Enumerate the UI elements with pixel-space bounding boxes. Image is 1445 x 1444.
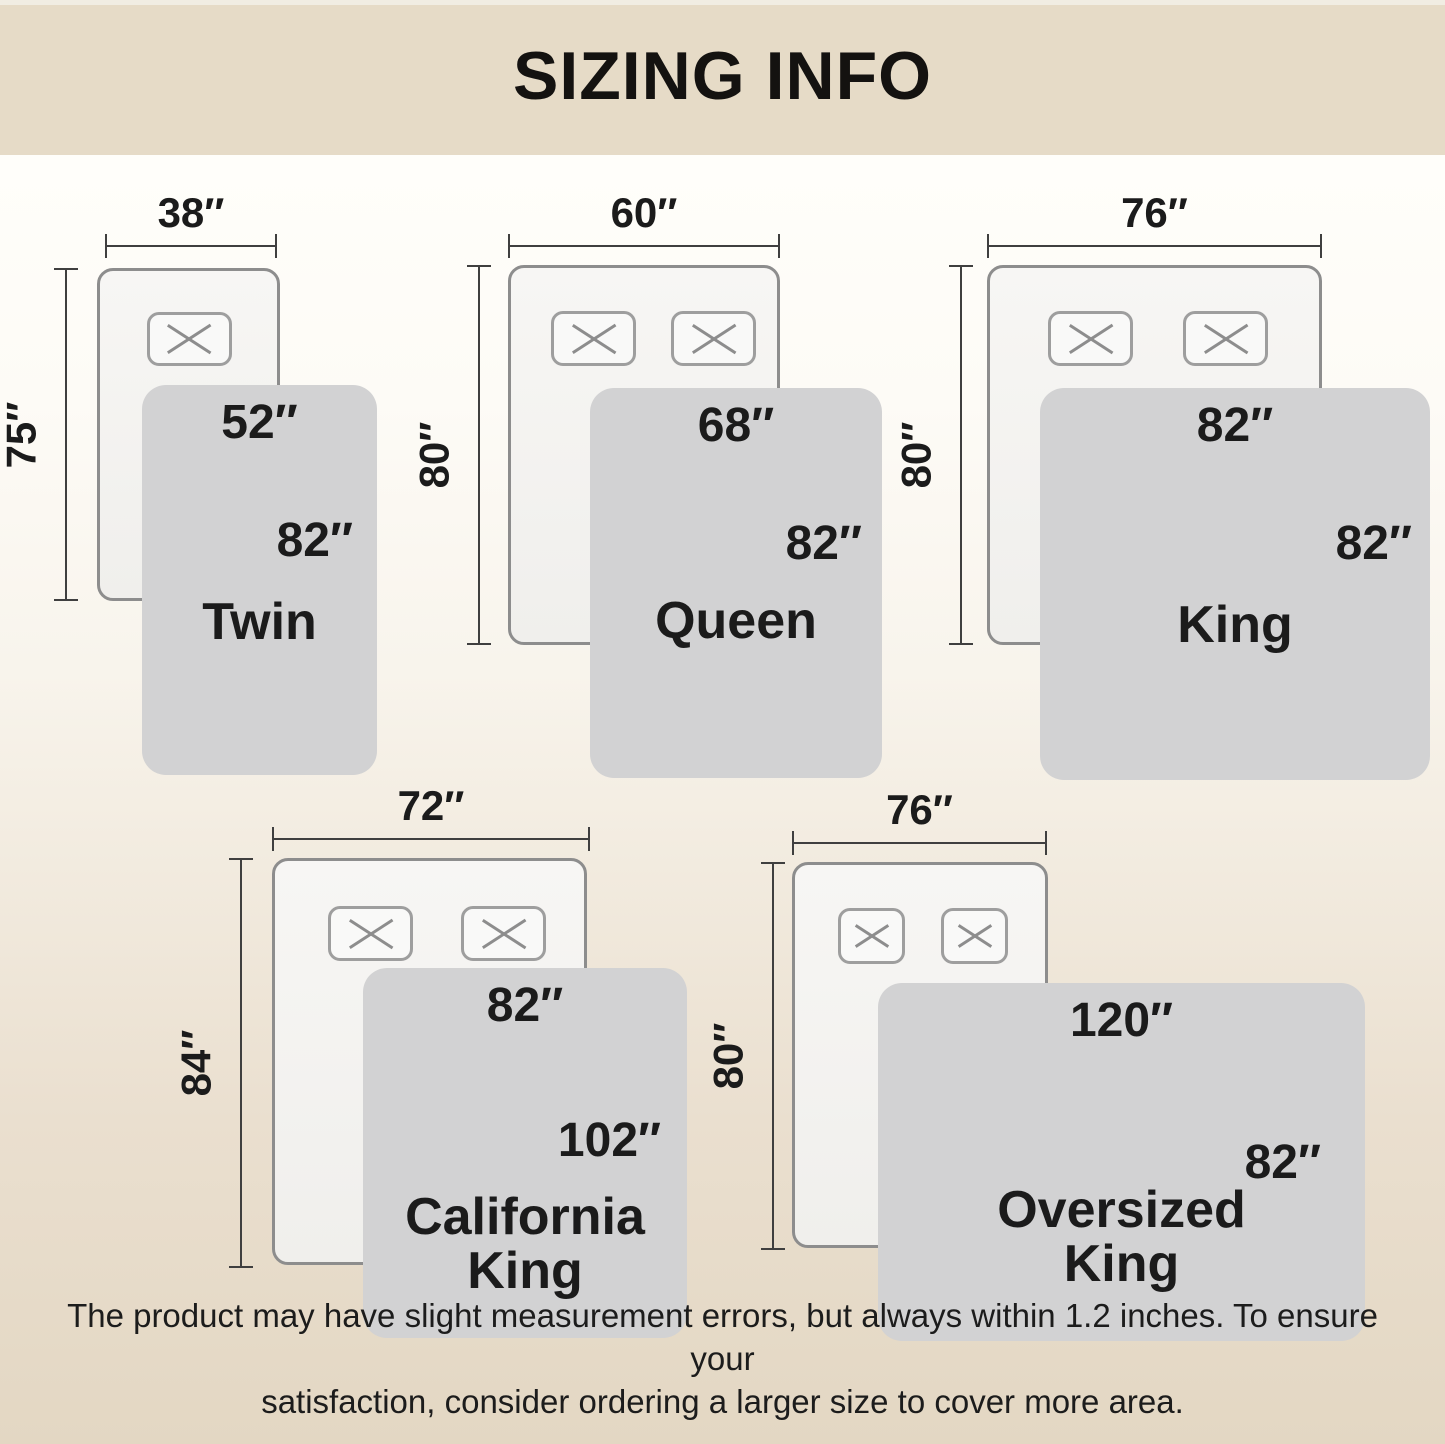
bed-width-label: 76″	[1121, 189, 1188, 237]
sizing-info-infographic: SIZING INFO 38″ 75″ 52″ 82″ Twin 60″ 80″	[0, 0, 1445, 1444]
pillow-x-icon	[554, 314, 633, 363]
width-dimension-line: 76″	[792, 842, 1047, 844]
pillow-x-icon	[944, 911, 1005, 961]
size-name-label: King	[1177, 598, 1293, 652]
blanket-shape: 68″ 82″ Queen	[590, 388, 882, 778]
pillow-shape	[1183, 311, 1268, 366]
bed-shape	[272, 858, 587, 1265]
footer-note: The product may have slight measurement …	[0, 1295, 1445, 1444]
width-dimension-line: 60″	[508, 245, 780, 247]
pillow-shape	[1048, 311, 1133, 366]
bed-shape	[97, 268, 280, 601]
pillow-x-icon	[464, 909, 543, 958]
pillow-shape	[838, 908, 905, 964]
length-dimension-line: 80″	[772, 862, 774, 1250]
blanket-length-label: 102″	[558, 1113, 661, 1168]
blanket-width-label: 52″	[221, 395, 297, 450]
bed-length-label: 80″	[893, 422, 941, 489]
blanket-shape: 52″ 82″ Twin	[142, 385, 377, 775]
size-diagram-twin: 38″ 75″ 52″ 82″ Twin	[0, 0, 1445, 1444]
pillow-shape	[147, 312, 232, 366]
size-name-label: California King	[405, 1190, 645, 1298]
bed-width-label: 76″	[886, 786, 953, 834]
width-dimension-line: 38″	[105, 245, 277, 247]
blanket-length-label: 82″	[277, 513, 353, 568]
bed-shape	[508, 265, 780, 645]
blanket-width-label: 68″	[698, 398, 774, 453]
pillow-shape	[941, 908, 1008, 964]
size-diagram-california-king: 72″ 84″ 82″ 102″ California King	[0, 0, 1445, 1444]
pillow-x-icon	[331, 909, 410, 958]
size-name-label: Queen	[655, 594, 817, 648]
blanket-shape: 120″ 82″ Oversized King	[878, 983, 1365, 1341]
blanket-shape: 82″ 102″ California King	[363, 968, 687, 1338]
size-name-label: Twin	[202, 595, 317, 649]
bed-length-label: 84″	[173, 1030, 221, 1097]
size-name-label: Oversized King	[997, 1183, 1246, 1291]
pillow-shape	[551, 311, 636, 366]
size-diagram-oversized-king: 76″ 80″ 120″ 82″ Oversized King	[0, 0, 1445, 1444]
header-band: SIZING INFO	[0, 0, 1445, 155]
bed-length-label: 75″	[0, 401, 46, 468]
pillow-x-icon	[674, 314, 753, 363]
blanket-length-label: 82″	[1336, 516, 1412, 571]
blanket-length-label: 82″	[786, 516, 862, 571]
bed-length-label: 80″	[705, 1023, 753, 1090]
width-dimension-line: 72″	[272, 838, 590, 840]
bed-width-label: 60″	[611, 189, 678, 237]
size-diagram-king: 76″ 80″ 82″ 82″ King	[0, 0, 1445, 1444]
pillow-shape	[461, 906, 546, 961]
blanket-width-label: 82″	[487, 978, 563, 1033]
bed-length-label: 80″	[411, 422, 459, 489]
width-dimension-line: 76″	[987, 245, 1322, 247]
bed-shape	[792, 862, 1048, 1248]
blanket-width-label: 82″	[1197, 398, 1273, 453]
length-dimension-line: 75″	[65, 268, 67, 601]
page-title: SIZING INFO	[0, 5, 1445, 115]
pillow-x-icon	[1186, 314, 1265, 363]
length-dimension-line: 84″	[240, 858, 242, 1268]
blanket-width-label: 120″	[1070, 993, 1173, 1048]
size-diagram-queen: 60″ 80″ 68″ 82″ Queen	[0, 0, 1445, 1444]
pillow-shape	[671, 311, 756, 366]
pillow-x-icon	[150, 315, 229, 363]
pillow-shape	[328, 906, 413, 961]
length-dimension-line: 80″	[960, 265, 962, 645]
disclaimer-text: The product may have slight measurement …	[40, 1295, 1405, 1424]
bed-shape	[987, 265, 1322, 645]
blanket-shape: 82″ 82″ King	[1040, 388, 1430, 780]
bed-width-label: 72″	[398, 782, 465, 830]
length-dimension-line: 80″	[478, 265, 480, 645]
blanket-length-label: 82″	[1245, 1135, 1321, 1190]
pillow-x-icon	[841, 911, 902, 961]
pillow-x-icon	[1051, 314, 1130, 363]
bed-width-label: 38″	[158, 189, 225, 237]
